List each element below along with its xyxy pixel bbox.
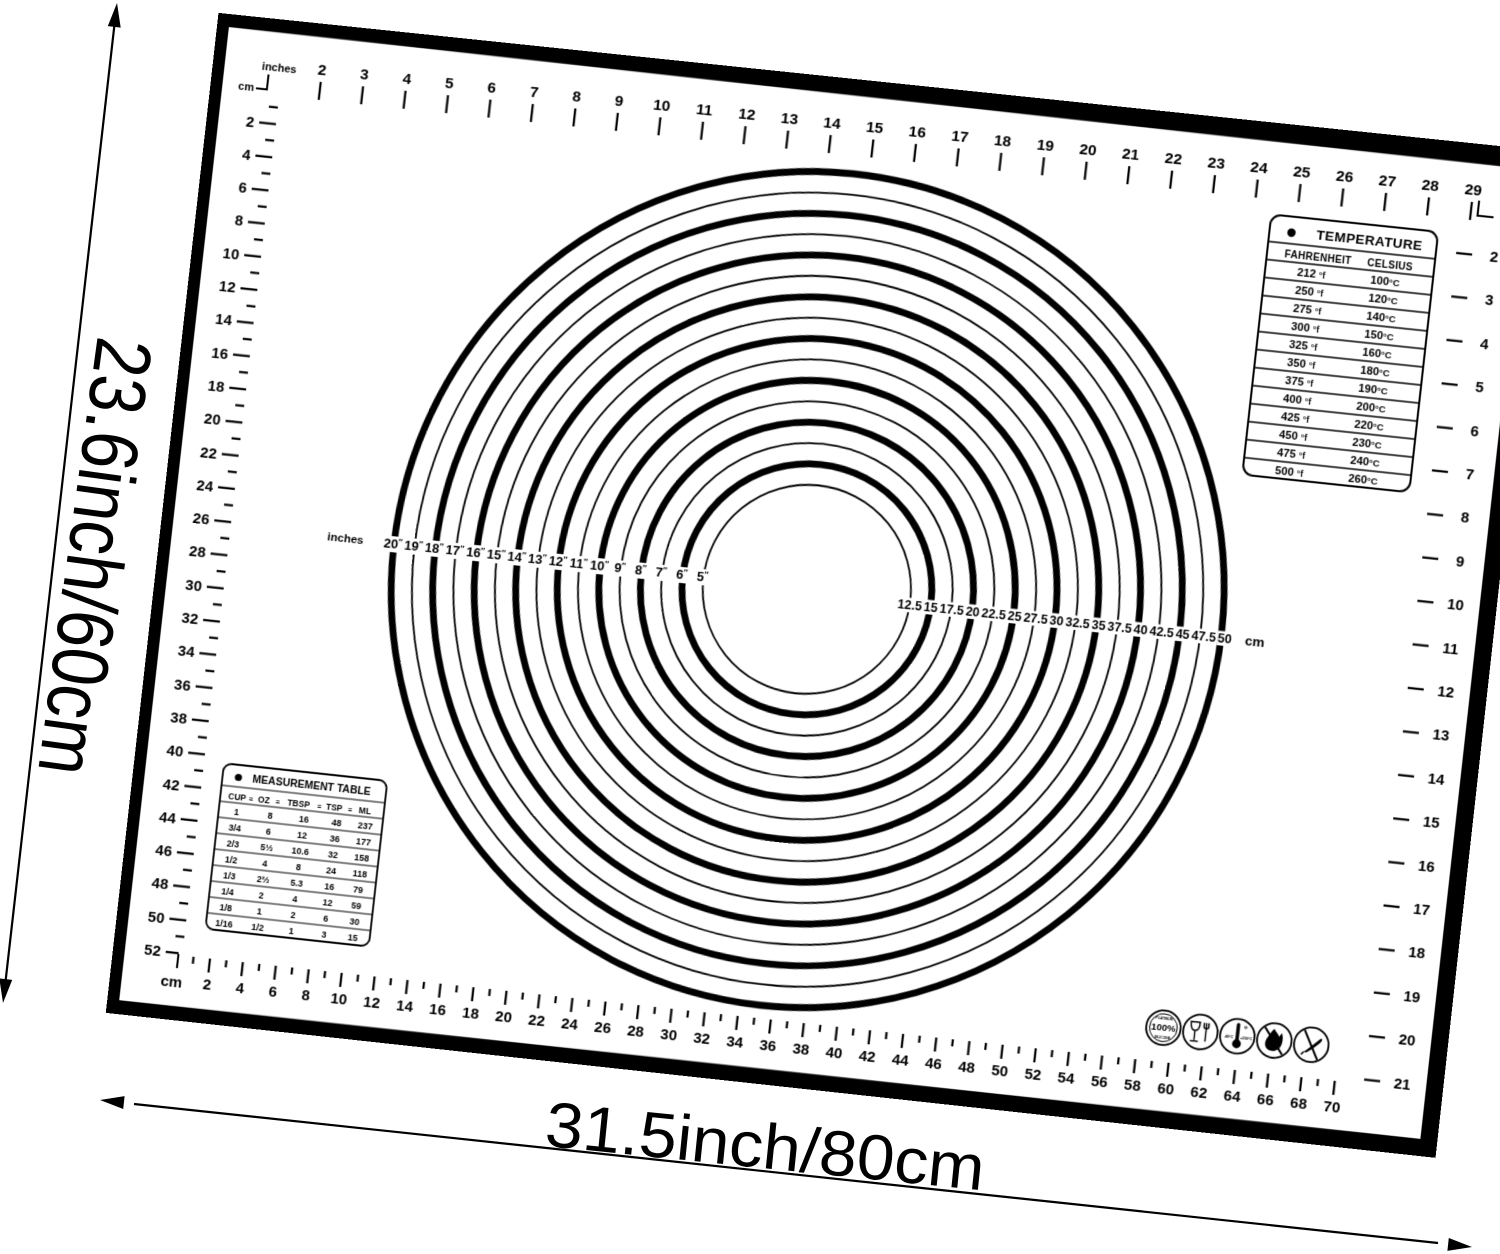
svg-text:6: 6 bbox=[268, 983, 278, 1001]
svg-text:158: 158 bbox=[354, 852, 370, 864]
svg-text:36: 36 bbox=[759, 1037, 778, 1056]
svg-text:11: 11 bbox=[695, 101, 714, 120]
svg-text:52: 52 bbox=[143, 941, 161, 960]
svg-text:20: 20 bbox=[965, 604, 980, 620]
svg-text:24: 24 bbox=[326, 865, 337, 876]
svg-text:+230°C: +230°C bbox=[1240, 1036, 1253, 1041]
svg-text:3/4: 3/4 bbox=[228, 822, 242, 833]
svg-text:1/8: 1/8 bbox=[219, 902, 233, 913]
svg-text:48: 48 bbox=[957, 1058, 976, 1077]
svg-text:5: 5 bbox=[1474, 379, 1484, 397]
svg-text:14: 14 bbox=[395, 997, 414, 1016]
svg-text:32: 32 bbox=[181, 610, 199, 629]
svg-text:28: 28 bbox=[1421, 176, 1441, 195]
svg-text:ML: ML bbox=[358, 805, 371, 816]
svg-text:25: 25 bbox=[1292, 163, 1312, 182]
svg-text:17.5: 17.5 bbox=[939, 601, 965, 618]
svg-text:10: 10 bbox=[1446, 596, 1465, 615]
svg-text:16: 16 bbox=[428, 1001, 446, 1020]
svg-text:56: 56 bbox=[1090, 1073, 1109, 1092]
svg-text:42: 42 bbox=[858, 1047, 877, 1066]
svg-text:5⅓: 5⅓ bbox=[260, 842, 274, 853]
svg-text:6: 6 bbox=[237, 179, 247, 197]
svg-text:7: 7 bbox=[1465, 466, 1475, 484]
svg-text:32: 32 bbox=[327, 849, 338, 860]
svg-text:44: 44 bbox=[891, 1051, 910, 1070]
svg-text:1/4: 1/4 bbox=[221, 886, 235, 897]
svg-text:1/3: 1/3 bbox=[223, 870, 237, 881]
svg-text:1/2: 1/2 bbox=[251, 922, 265, 933]
svg-text:8: 8 bbox=[301, 987, 311, 1005]
svg-text:=: = bbox=[248, 796, 253, 803]
svg-text:2/3: 2/3 bbox=[226, 838, 240, 849]
svg-text:16: 16 bbox=[1417, 857, 1436, 876]
svg-text:66: 66 bbox=[1256, 1091, 1275, 1110]
svg-text:35: 35 bbox=[1091, 618, 1107, 634]
svg-text:4: 4 bbox=[402, 70, 413, 88]
svg-text:5.3: 5.3 bbox=[290, 877, 304, 888]
svg-text:20: 20 bbox=[203, 411, 221, 430]
svg-text:14: 14 bbox=[214, 311, 233, 330]
svg-text:20: 20 bbox=[494, 1008, 512, 1027]
svg-text:27: 27 bbox=[1378, 172, 1397, 191]
svg-text:inches: inches bbox=[261, 61, 297, 77]
svg-text:40: 40 bbox=[166, 742, 184, 761]
svg-text:12.5: 12.5 bbox=[897, 597, 923, 614]
svg-text:5: 5 bbox=[444, 75, 455, 93]
svg-text:6: 6 bbox=[1470, 422, 1480, 440]
svg-text:68: 68 bbox=[1289, 1094, 1308, 1113]
svg-text:42: 42 bbox=[162, 776, 180, 795]
svg-text:12: 12 bbox=[322, 897, 333, 908]
svg-text:24: 24 bbox=[560, 1015, 579, 1034]
svg-text:29: 29 bbox=[1464, 181, 1484, 200]
svg-text:70: 70 bbox=[1323, 1098, 1342, 1117]
svg-text:19: 19 bbox=[1036, 136, 1055, 155]
svg-text:9: 9 bbox=[614, 92, 625, 110]
svg-text:38: 38 bbox=[792, 1040, 811, 1059]
svg-text:4: 4 bbox=[1479, 335, 1490, 353]
svg-text:36: 36 bbox=[173, 676, 191, 695]
svg-text:20: 20 bbox=[1398, 1031, 1417, 1050]
svg-text:10: 10 bbox=[222, 245, 240, 264]
svg-text:1/16: 1/16 bbox=[215, 918, 233, 930]
svg-text:8: 8 bbox=[571, 88, 582, 106]
svg-text:40: 40 bbox=[1133, 622, 1149, 638]
svg-text:30: 30 bbox=[184, 576, 202, 595]
svg-text:16: 16 bbox=[324, 881, 335, 892]
svg-text:7: 7 bbox=[529, 84, 539, 102]
svg-text:26: 26 bbox=[192, 510, 210, 529]
svg-text:=: = bbox=[275, 799, 280, 806]
svg-text:10.6: 10.6 bbox=[291, 845, 309, 857]
svg-text:2⅔: 2⅔ bbox=[256, 874, 270, 885]
svg-text:44: 44 bbox=[158, 809, 177, 828]
svg-text:9: 9 bbox=[1455, 553, 1465, 571]
svg-text:6: 6 bbox=[487, 79, 498, 97]
svg-text:-40°C: -40°C bbox=[1224, 1034, 1234, 1039]
svg-text:47.5: 47.5 bbox=[1191, 628, 1217, 645]
svg-text:52: 52 bbox=[1024, 1065, 1043, 1084]
svg-text:21: 21 bbox=[1121, 145, 1140, 164]
svg-text:2: 2 bbox=[245, 113, 255, 131]
svg-text:cm: cm bbox=[160, 972, 183, 991]
svg-text:cm: cm bbox=[238, 80, 255, 94]
svg-text:3: 3 bbox=[359, 66, 370, 84]
svg-text:16: 16 bbox=[298, 814, 309, 825]
svg-text:24: 24 bbox=[1249, 159, 1269, 178]
svg-text:28: 28 bbox=[626, 1022, 644, 1041]
svg-text:18: 18 bbox=[461, 1004, 479, 1023]
svg-text:32: 32 bbox=[692, 1029, 710, 1048]
svg-text:15: 15 bbox=[865, 119, 884, 138]
svg-text:TSP: TSP bbox=[326, 802, 344, 814]
svg-text:28: 28 bbox=[188, 543, 206, 562]
svg-text:10: 10 bbox=[330, 990, 348, 1009]
svg-text:32.5: 32.5 bbox=[1065, 615, 1091, 632]
svg-text:12: 12 bbox=[218, 278, 236, 297]
svg-text:21: 21 bbox=[1393, 1075, 1412, 1094]
svg-text:45: 45 bbox=[1175, 627, 1191, 643]
svg-text:14: 14 bbox=[822, 114, 841, 133]
svg-text:34: 34 bbox=[177, 643, 196, 662]
svg-text:OZ: OZ bbox=[258, 794, 271, 805]
svg-text:23: 23 bbox=[1207, 154, 1227, 173]
svg-text:22.5: 22.5 bbox=[981, 606, 1007, 623]
svg-text:CUP: CUP bbox=[228, 791, 247, 803]
svg-text:2: 2 bbox=[1489, 248, 1499, 266]
svg-text:2: 2 bbox=[202, 976, 212, 994]
svg-text:19: 19 bbox=[1403, 988, 1422, 1007]
svg-text:30: 30 bbox=[1049, 613, 1064, 629]
svg-text:18: 18 bbox=[1407, 944, 1426, 963]
svg-text:16: 16 bbox=[211, 344, 229, 363]
svg-text:8: 8 bbox=[1460, 509, 1470, 527]
svg-text:1/2: 1/2 bbox=[224, 854, 238, 865]
svg-text:50: 50 bbox=[147, 908, 165, 927]
svg-text:79: 79 bbox=[353, 884, 364, 895]
svg-text:237: 237 bbox=[357, 820, 373, 832]
svg-text:14: 14 bbox=[1427, 770, 1446, 789]
svg-text:25: 25 bbox=[1007, 609, 1022, 625]
svg-text:64: 64 bbox=[1223, 1087, 1242, 1106]
svg-text:59: 59 bbox=[351, 900, 362, 911]
svg-text:46: 46 bbox=[924, 1055, 943, 1074]
svg-text:31.5inch/80cm: 31.5inch/80cm bbox=[542, 1088, 988, 1204]
svg-text:11: 11 bbox=[1442, 639, 1460, 658]
svg-text:15: 15 bbox=[347, 932, 358, 943]
svg-text:cm: cm bbox=[1244, 633, 1265, 650]
svg-text:2: 2 bbox=[317, 62, 327, 80]
svg-text:177: 177 bbox=[355, 836, 371, 848]
svg-text:50: 50 bbox=[990, 1062, 1009, 1081]
svg-text:22: 22 bbox=[199, 444, 217, 463]
svg-text:17: 17 bbox=[1412, 901, 1431, 920]
svg-text:13: 13 bbox=[1432, 726, 1451, 745]
svg-text:36: 36 bbox=[329, 833, 340, 844]
svg-text:38: 38 bbox=[169, 709, 187, 728]
svg-text:13: 13 bbox=[780, 110, 799, 129]
svg-text:4: 4 bbox=[241, 146, 252, 164]
svg-text:15: 15 bbox=[1422, 813, 1441, 832]
svg-text:4: 4 bbox=[235, 980, 246, 998]
svg-text:16: 16 bbox=[908, 123, 927, 142]
svg-text:24: 24 bbox=[196, 477, 215, 496]
svg-text:48: 48 bbox=[151, 875, 169, 894]
svg-text:26: 26 bbox=[593, 1019, 611, 1038]
svg-text:37.5: 37.5 bbox=[1107, 619, 1133, 636]
svg-text:12: 12 bbox=[737, 105, 756, 124]
svg-text:18: 18 bbox=[993, 132, 1012, 151]
svg-text:=: = bbox=[348, 807, 353, 814]
svg-text:42.5: 42.5 bbox=[1149, 624, 1175, 641]
svg-text:=: = bbox=[317, 804, 322, 811]
svg-text:18: 18 bbox=[207, 377, 225, 396]
svg-text:22: 22 bbox=[527, 1011, 545, 1030]
svg-text:40: 40 bbox=[825, 1044, 844, 1063]
svg-text:17: 17 bbox=[950, 128, 969, 147]
svg-text:48: 48 bbox=[331, 817, 342, 828]
svg-text:15: 15 bbox=[923, 600, 938, 616]
svg-text:62: 62 bbox=[1190, 1083, 1209, 1102]
svg-text:50: 50 bbox=[1217, 631, 1233, 647]
svg-text:12: 12 bbox=[362, 993, 380, 1012]
svg-text:46: 46 bbox=[154, 842, 172, 861]
svg-text:58: 58 bbox=[1123, 1076, 1142, 1095]
svg-text:34: 34 bbox=[725, 1033, 744, 1052]
svg-text:12: 12 bbox=[1436, 683, 1455, 702]
svg-text:30: 30 bbox=[659, 1026, 677, 1045]
svg-text:118: 118 bbox=[352, 868, 368, 880]
svg-text:26: 26 bbox=[1335, 168, 1355, 187]
svg-text:54: 54 bbox=[1057, 1069, 1076, 1088]
svg-text:100%: 100% bbox=[1151, 1022, 1177, 1036]
svg-text:PLATINUM: PLATINUM bbox=[1156, 1016, 1174, 1022]
svg-text:20: 20 bbox=[1078, 141, 1097, 160]
svg-text:3: 3 bbox=[1484, 292, 1494, 310]
svg-text:10: 10 bbox=[652, 96, 671, 115]
svg-text:30: 30 bbox=[349, 916, 360, 927]
svg-text:22: 22 bbox=[1164, 150, 1183, 169]
svg-text:8: 8 bbox=[234, 213, 244, 231]
svg-text:27.5: 27.5 bbox=[1023, 610, 1049, 627]
svg-text:60: 60 bbox=[1156, 1080, 1175, 1099]
svg-text:12: 12 bbox=[297, 830, 308, 841]
